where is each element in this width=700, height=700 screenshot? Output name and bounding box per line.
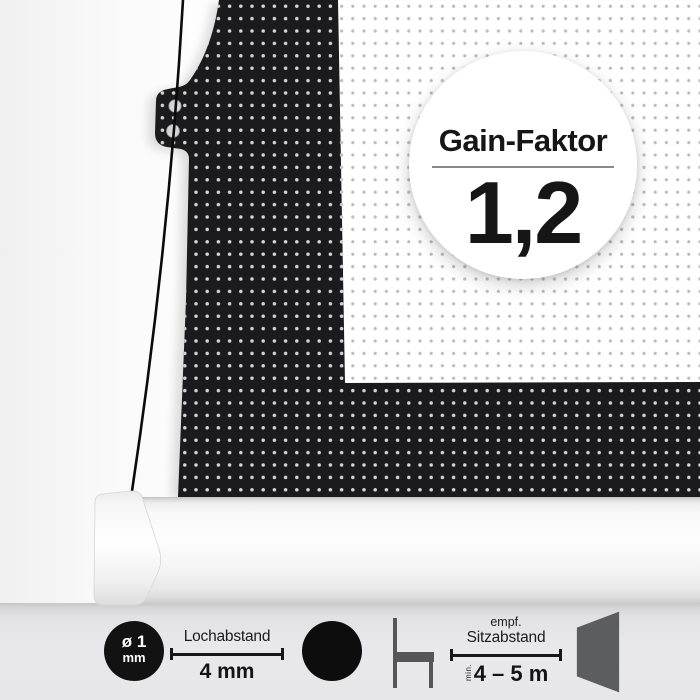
dot-icon xyxy=(302,621,362,681)
pitch-label: Lochabstand xyxy=(170,628,284,645)
gain-factor-title: Gain-Faktor xyxy=(439,123,607,159)
pitch-value: 4 mm xyxy=(170,661,284,683)
seating-measure-line xyxy=(450,649,562,661)
bottom-weight-bar xyxy=(128,497,700,603)
seating-min-label: min. xyxy=(464,663,473,681)
hole-pitch-group: Lochabstand 4 mm xyxy=(170,628,284,683)
pitch-measure-line xyxy=(170,648,284,660)
chair-front-leg xyxy=(429,662,433,688)
chair-seat xyxy=(393,652,434,662)
hole-size-icon: ø 1 mm xyxy=(104,621,164,681)
measure-bar xyxy=(450,654,562,657)
seating-value: 4 – 5 m xyxy=(474,663,549,685)
seating-distance-group: empf. Sitzabstand min. 4 – 5 m xyxy=(444,616,568,685)
product-image: Gain-Faktor 1,2 ø 1 mm Lochabstand 4 mm … xyxy=(0,0,700,700)
gain-factor-value: 1,2 xyxy=(465,171,581,255)
measure-tick-right xyxy=(281,648,284,660)
gain-factor-badge: Gain-Faktor 1,2 xyxy=(409,51,637,279)
chair-icon xyxy=(391,617,434,689)
seating-label: Sitzabstand xyxy=(444,629,568,646)
measure-bar xyxy=(170,653,284,656)
seating-qualifier: empf. xyxy=(444,616,568,629)
hole-diameter-label: ø 1 xyxy=(104,633,164,651)
measure-tick-right xyxy=(559,649,562,661)
hole-unit-label: mm xyxy=(104,651,164,665)
